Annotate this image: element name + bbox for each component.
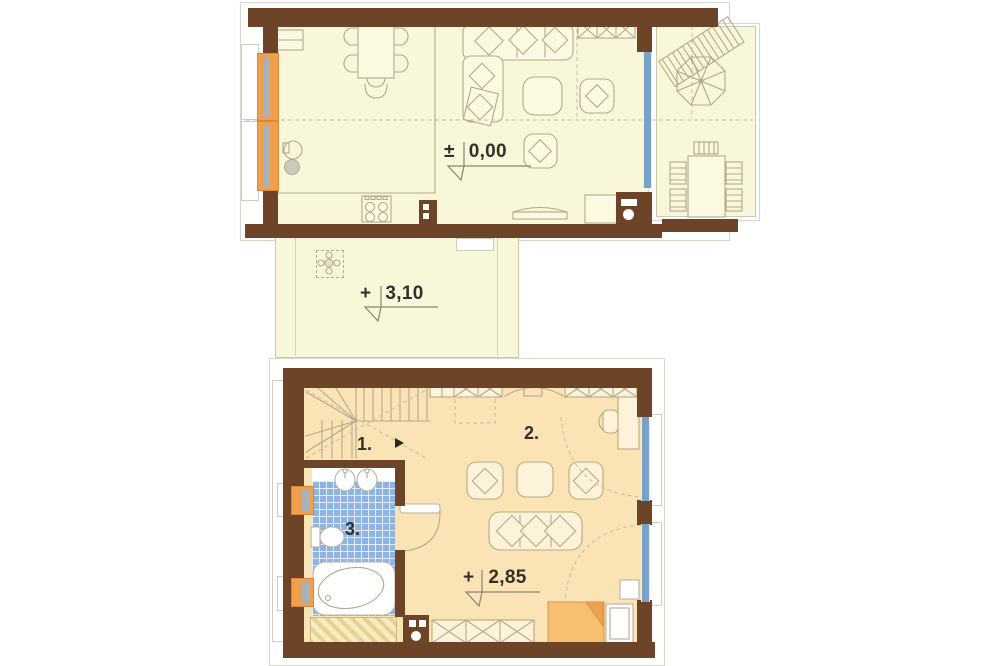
bathtub-icon <box>313 562 395 615</box>
pillar-detail-1 <box>423 204 429 210</box>
wall-ground-left-lower <box>263 189 278 225</box>
elevation-label-landing: + 3,10 <box>360 283 424 305</box>
glass-pane <box>302 490 309 511</box>
desk-and-chair <box>599 397 639 449</box>
elevation-value: 3,10 <box>385 283 423 305</box>
fireplace-flue <box>623 209 634 220</box>
window-ground-left-1 <box>257 53 279 121</box>
sink-icon <box>357 469 377 491</box>
wall-bath-right-upper <box>395 468 405 506</box>
wall-ground-top <box>248 8 718 27</box>
kitchen-sink <box>283 141 302 175</box>
dining-table-set <box>344 20 408 98</box>
wall-ground-bottom <box>245 224 662 238</box>
elevation-sign: ± <box>444 141 455 163</box>
fireplace-block <box>616 192 652 225</box>
utility-detail-2 <box>419 620 426 627</box>
window-ground-right <box>643 52 652 188</box>
wardrobe-upper-bottom <box>432 620 534 643</box>
glass-pane <box>302 582 309 603</box>
glass-pane <box>263 125 270 187</box>
floor-plan-document: ± 0,00 + 3,10 + 2,85 1. 2. 3. <box>0 0 1000 666</box>
window-upper-left-2 <box>291 578 314 607</box>
coffee-table <box>523 77 562 115</box>
wall-upper-right-2 <box>637 500 652 525</box>
utility-detail-1 <box>409 620 416 627</box>
wall-bath-divider <box>283 460 405 468</box>
wall-upper-right-3 <box>637 600 652 658</box>
wall-ground-left-upper <box>263 27 278 53</box>
wall-upper-top <box>283 368 652 388</box>
elevation-sign: + <box>463 567 474 589</box>
wall-upper-bottom <box>283 642 655 658</box>
armchair <box>467 462 503 499</box>
armchair <box>569 462 603 499</box>
glass-pane <box>263 57 270 117</box>
tv-sideboard <box>513 195 618 223</box>
wall-ground-right-stub <box>637 27 652 52</box>
wall-upper-right-1 <box>637 388 652 417</box>
elevation-label-ground: ± 0,00 <box>444 141 507 163</box>
pillar-detail-2 <box>423 213 429 219</box>
window-upper-left-1 <box>291 486 314 515</box>
armchair <box>524 134 557 168</box>
bathroom-door <box>400 504 440 551</box>
elevation-sign: + <box>360 283 371 305</box>
wall-bath-right-lower <box>395 550 405 617</box>
elevation-value: 0,00 <box>469 141 507 163</box>
ceiling-lamp-icon <box>318 252 340 274</box>
room-label-bathroom: 3. <box>345 519 360 540</box>
sink-icon <box>335 469 355 491</box>
room-label-living: 2. <box>524 423 539 444</box>
kitchen-counter <box>277 20 435 193</box>
window-upper-right-2 <box>641 524 650 602</box>
window-ground-left-2 <box>257 121 279 191</box>
room-label-stairs: 1. <box>357 434 372 455</box>
nightstand <box>606 580 639 643</box>
utility-flue <box>411 631 421 641</box>
coffee-table-upper <box>517 462 553 497</box>
toilet-icon <box>311 527 344 547</box>
ceiling-void-dashed <box>455 397 495 423</box>
sun-lounger <box>659 17 744 87</box>
fireplace-detail <box>621 199 637 206</box>
bed-icon <box>548 602 604 643</box>
window-upper-right-1 <box>641 417 650 501</box>
armchair <box>580 79 614 113</box>
stair-direction-arrow <box>395 438 404 448</box>
stove-icon <box>362 196 391 222</box>
terrace-table-set <box>670 142 742 217</box>
sofa-upper <box>489 512 582 550</box>
wall-terrace-bottom <box>662 219 738 232</box>
elevation-value: 2,85 <box>488 567 526 589</box>
elevation-label-upper: + 2,85 <box>463 567 527 589</box>
